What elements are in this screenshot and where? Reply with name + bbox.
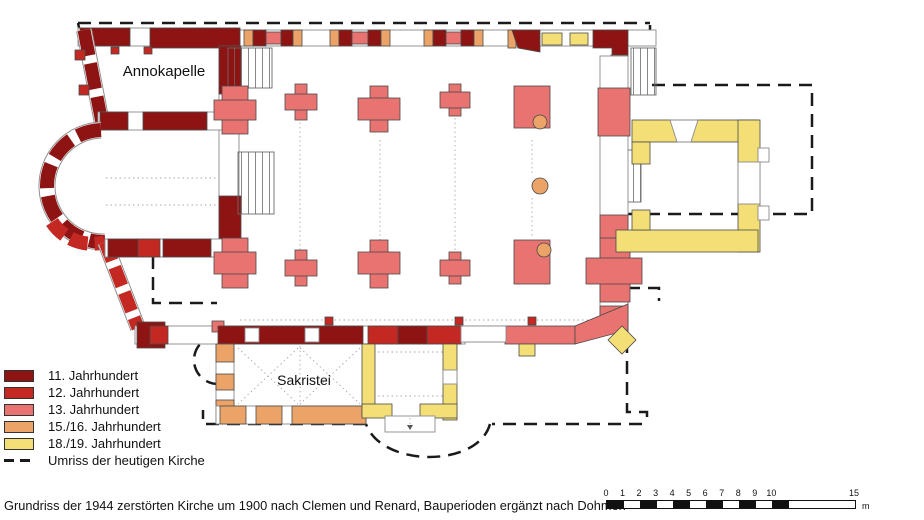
scale-tick-9: 9 [752, 488, 757, 498]
north-nave-wall [240, 30, 656, 65]
legend-dash-sample [4, 455, 34, 467]
legend-label: Umriss der heutigen Kirche [48, 453, 205, 468]
sakristei-label: Sakristei [252, 372, 356, 388]
annokapelle-label: Annokapelle [100, 63, 228, 80]
legend-label: 13. Jahrhundert [48, 402, 139, 417]
legend-item-c11: 11. Jahrhundert [4, 367, 205, 384]
south-nave-wall [135, 304, 636, 356]
scale-tick-10: 10 [766, 488, 776, 498]
legend-item-c12: 12. Jahrhundert [4, 384, 205, 401]
scale-black-segment [739, 501, 756, 508]
scale-black-segment [772, 501, 789, 508]
scale-tick-15: 15 [849, 488, 859, 498]
scale-tick-6: 6 [703, 488, 708, 498]
legend-item-c1819: 18./19. Jahrhundert [4, 435, 205, 452]
legend-label: 12. Jahrhundert [48, 385, 139, 400]
interior-dotted-lines [104, 118, 595, 320]
scale-unit-label: m [862, 501, 870, 511]
legend-label: 11. Jahrhundert [48, 368, 138, 383]
legend: 11. Jahrhundert12. Jahrhundert13. Jahrhu… [4, 367, 205, 469]
scale-black-segment [640, 501, 657, 508]
legend-label: 15./16. Jahrhundert [48, 419, 161, 434]
legend-color-swatch [4, 421, 34, 433]
legend-item-c13: 13. Jahrhundert [4, 401, 205, 418]
scale-tick-1: 1 [620, 488, 625, 498]
legend-item-c1516: 15./16. Jahrhundert [4, 418, 205, 435]
legend-item-outline: Umriss der heutigen Kirche [4, 452, 205, 469]
scale-tick-4: 4 [670, 488, 675, 498]
scale-ticks: 01234567891015 [606, 488, 896, 498]
west-apse [47, 130, 240, 328]
legend-color-swatch [4, 370, 34, 382]
caption: Grundriss der 1944 zerstörten Kirche um … [4, 498, 626, 513]
scale-black-segment [607, 501, 624, 508]
scale-tick-3: 3 [653, 488, 658, 498]
scale-tick-8: 8 [736, 488, 741, 498]
floor-plan-page: Annokapelle Sakristei 11. Jahrhundert12.… [0, 0, 924, 520]
scale-black-segment [673, 501, 690, 508]
scale-tick-0: 0 [603, 488, 608, 498]
scale-rule [606, 500, 856, 509]
legend-color-swatch [4, 438, 34, 450]
legend-color-swatch [4, 404, 34, 416]
legend-label: 18./19. Jahrhundert [48, 436, 161, 451]
scale-tick-5: 5 [686, 488, 691, 498]
legend-color-swatch [4, 387, 34, 399]
scale-black-segment [706, 501, 723, 508]
scale-tick-7: 7 [719, 488, 724, 498]
scale-bar: 01234567891015m [606, 488, 896, 514]
staircases [228, 48, 656, 214]
scale-tick-2: 2 [637, 488, 642, 498]
